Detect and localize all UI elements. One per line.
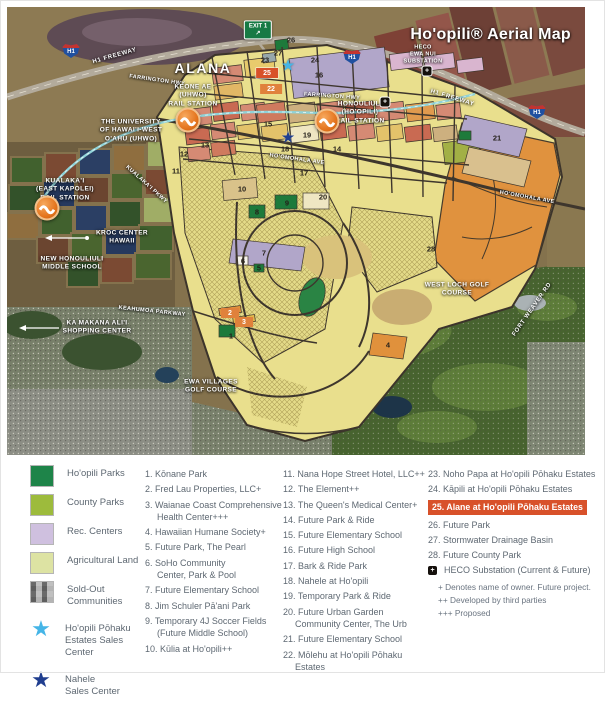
legend-item: 7. Future Elementary School — [145, 584, 285, 596]
legend-swatch-label: Ho'opili Pōhaku Estates Sales Center — [65, 620, 131, 659]
map-marker-13: 13 — [201, 141, 209, 149]
map-marker-25: 25 — [256, 68, 278, 78]
sales-center-star: ★ — [282, 130, 295, 144]
map-marker-23: 23 — [261, 56, 269, 64]
exit-arrow-icon: ↗ — [249, 31, 267, 38]
legend-swatches: Ho'opili ParksCounty ParksRec. CentersAg… — [30, 465, 140, 705]
sales-center-star-icon: ★ — [30, 620, 52, 640]
legend-item: 12. The Element++ — [283, 483, 428, 495]
map-marker-21: 21 — [493, 134, 501, 142]
legend-color-swatch — [30, 465, 54, 487]
map-marker-4: 4 — [386, 341, 390, 349]
legend-item: 19. Temporary Park & Ride — [283, 590, 428, 602]
legend-item: 3. Waianae Coast Comprehensive Health Ce… — [145, 499, 285, 524]
legend-item: 13. The Queen's Medical Center+ — [283, 499, 428, 511]
exit-sign-label: EXIT 1 — [249, 23, 267, 29]
legend-item: 14. Future Park & Ride — [283, 514, 428, 526]
map-marker-5: 5 — [257, 264, 261, 272]
map-markers: 1234567891011121314151617181920212223242… — [7, 7, 585, 455]
map-marker-15: 15 — [264, 120, 272, 128]
legend-color-swatch — [30, 552, 54, 574]
legend-item: 27. Stormwater Drainage Basin — [428, 534, 602, 546]
rail-station-icon-honouliuli — [315, 109, 340, 134]
heco-substation-icon: + — [423, 67, 432, 76]
map-marker-27: 27 — [274, 49, 282, 57]
map-overlay: Ho'opili® Aerial Map H1 FREEWAY H1 FREEW… — [7, 7, 585, 455]
legend-item: 17. Bark & Ride Park — [283, 560, 428, 572]
map-marker-10: 10 — [238, 185, 246, 193]
legend-item: 20. Future Urban Garden Community Center… — [283, 606, 428, 631]
legend-item: 26. Future Park — [428, 519, 602, 531]
map-marker-14: 14 — [333, 145, 341, 153]
map-marker-16: 16 — [315, 71, 323, 79]
legend-item: 15. Future Elementary School — [283, 529, 428, 541]
heco-substation-icon: + — [381, 98, 390, 107]
map-marker-28: 28 — [427, 245, 435, 253]
map-marker-7: 7 — [262, 249, 266, 257]
legend-item: 1. Kōnane Park — [145, 468, 285, 480]
legend-item: 6. SoHo Community Center, Park & Pool — [145, 557, 285, 582]
map-marker-22: 22 — [260, 84, 282, 94]
legend-item: 22. Mōlehu at Ho'opili Pōhaku Estates — [283, 649, 428, 674]
legend-swatch-label: Rec. Centers — [67, 523, 122, 538]
legend-item: 4. Hawaiian Humane Society+ — [145, 526, 285, 538]
legend-swatch-row: Ho'opili Parks — [30, 465, 140, 487]
map-marker-18: 18 — [281, 145, 289, 153]
legend-item: 23. Noho Papa at Ho'opili Pōhaku Estates — [428, 468, 602, 480]
legend-color-swatch — [30, 523, 54, 545]
legend-footnotes: + Denotes name of owner. Future project.… — [428, 581, 602, 620]
legend-item-25-highlighted: 25. Alane at Ho'opili Pōhaku Estates — [428, 500, 587, 515]
legend-item: 28. Future County Park — [428, 549, 602, 561]
legend-item: 11. Nana Hope Street Hotel, LLC++ — [283, 468, 428, 480]
map-marker-17: 17 — [300, 169, 308, 177]
legend-swatch-label: Sold-Out Communities — [67, 581, 122, 608]
map-marker-24: 24 — [311, 56, 319, 64]
legend-color-swatch — [30, 494, 54, 516]
map-marker-8: 8 — [255, 208, 259, 216]
legend-item: 2. Fred Lau Properties, LLC+ — [145, 483, 285, 495]
rail-station-icon-kualakai — [35, 196, 60, 221]
legend-items-23-24: 23. Noho Papa at Ho'opili Pōhaku Estates… — [428, 468, 602, 496]
exit-1-sign: EXIT 1 ↗ — [244, 20, 272, 39]
legend-swatch-label: Nahele Sales Center — [65, 671, 120, 698]
legend-item-heco: + HECO Substation (Current & Future) — [428, 565, 602, 575]
legend-swatch-row: County Parks — [30, 494, 140, 516]
legend: Ho'opili ParksCounty ParksRec. CentersAg… — [0, 455, 605, 673]
aerial-map: Ho'opili® Aerial Map H1 FREEWAY H1 FREEW… — [7, 7, 585, 455]
sales-center-star-icon: ★ — [30, 671, 52, 691]
legend-swatch-row: ★Ho'opili Pōhaku Estates Sales Center — [30, 620, 140, 659]
legend-swatch-row: Sold-Out Communities — [30, 581, 140, 608]
legend-item: 21. Future Elementary School — [283, 633, 428, 645]
legend-swatch-row: Agricultural Land — [30, 552, 140, 574]
rail-station-icon-keone — [176, 108, 201, 133]
map-marker-12: 12 — [180, 150, 188, 158]
heco-substation-label: HECO Substation (Current & Future) — [444, 565, 591, 575]
map-marker-26: 26 — [287, 36, 295, 44]
map-marker-1: 1 — [229, 332, 233, 340]
map-marker-6: 6 — [241, 257, 245, 265]
legend-color-swatch — [30, 581, 54, 603]
map-marker-3: 3 — [235, 317, 253, 327]
legend-item: 16. Future High School — [283, 544, 428, 556]
legend-swatch-label: Ho'opili Parks — [67, 465, 125, 480]
map-marker-19: 19 — [303, 131, 311, 139]
map-marker-11: 11 — [172, 167, 180, 175]
legend-item: 9. Temporary 4J Soccer Fields (Future Mi… — [145, 615, 285, 640]
legend-swatch-row: ★Nahele Sales Center — [30, 671, 140, 698]
legend-item: 8. Jim Schuler Pā'ani Park — [145, 600, 285, 612]
legend-item: 18. Nahele at Ho'opili — [283, 575, 428, 587]
sales-center-star: ★ — [282, 58, 295, 72]
legend-swatch-row: Rec. Centers — [30, 523, 140, 545]
map-marker-9: 9 — [285, 199, 289, 207]
legend-footnote: + Denotes name of owner. Future project. — [438, 581, 602, 594]
legend-swatch-label: Agricultural Land — [67, 552, 138, 567]
legend-column-1: 1. Kōnane Park2. Fred Lau Properties, LL… — [145, 468, 285, 658]
legend-items-26-28: 26. Future Park27. Stormwater Drainage B… — [428, 519, 602, 562]
map-marker-20: 20 — [319, 193, 327, 201]
legend-column-2: 11. Nana Hope Street Hotel, LLC++12. The… — [283, 468, 428, 676]
legend-column-3: 23. Noho Papa at Ho'opili Pōhaku Estates… — [428, 468, 602, 620]
legend-item: 10. Kūlia at Ho'opili++ — [145, 643, 285, 655]
heco-substation-icon: + — [428, 566, 437, 575]
legend-footnote: +++ Proposed — [438, 607, 602, 620]
legend-item: 5. Future Park, The Pearl — [145, 541, 285, 553]
legend-item: 24. Kāpili at Ho'opili Pōhaku Estates — [428, 483, 602, 495]
legend-swatch-label: County Parks — [67, 494, 124, 509]
legend-footnote: ++ Developed by third parties — [438, 594, 602, 607]
